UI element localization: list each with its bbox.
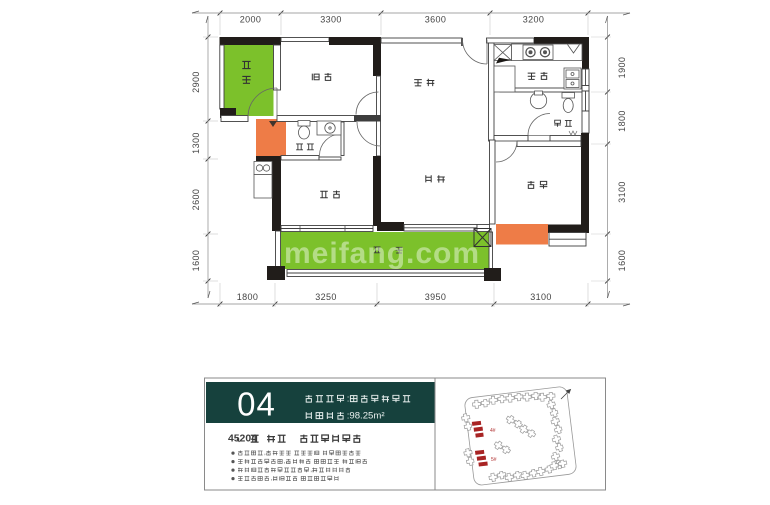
svg-text:3100: 3100	[530, 292, 552, 302]
svg-text:1800: 1800	[617, 110, 627, 132]
svg-text:3200: 3200	[523, 15, 545, 25]
svg-text:3250: 3250	[315, 292, 337, 302]
svg-text::: :	[347, 393, 350, 404]
svg-text:5#: 5#	[491, 457, 497, 463]
svg-text:3300: 3300	[320, 15, 342, 25]
svg-text:04: 04	[237, 386, 276, 423]
svg-text:2900: 2900	[191, 71, 201, 93]
svg-text:meifang.com: meifang.com	[284, 237, 480, 270]
svg-text:2600: 2600	[191, 189, 201, 211]
svg-text:1800: 1800	[237, 292, 259, 302]
svg-text:3950: 3950	[425, 292, 447, 302]
svg-text:3600: 3600	[425, 15, 447, 25]
svg-text:1900: 1900	[617, 57, 627, 79]
svg-text:,,,;: ,,,;	[284, 458, 291, 465]
svg-text:1600: 1600	[191, 250, 201, 272]
svg-text:,,,;: ,,,;	[264, 450, 271, 457]
svg-text:2000: 2000	[240, 15, 262, 25]
svg-text:1300: 1300	[191, 132, 201, 154]
svg-text:1600: 1600	[617, 250, 627, 272]
svg-text:,,;: ,,;	[271, 475, 276, 482]
svg-text::98.25m²: :98.25m²	[347, 410, 386, 421]
svg-text:3100: 3100	[617, 181, 627, 203]
svg-text:,;: ,;	[310, 467, 314, 474]
svg-text:45204: 45204	[228, 434, 257, 445]
svg-text:4#: 4#	[490, 428, 496, 434]
